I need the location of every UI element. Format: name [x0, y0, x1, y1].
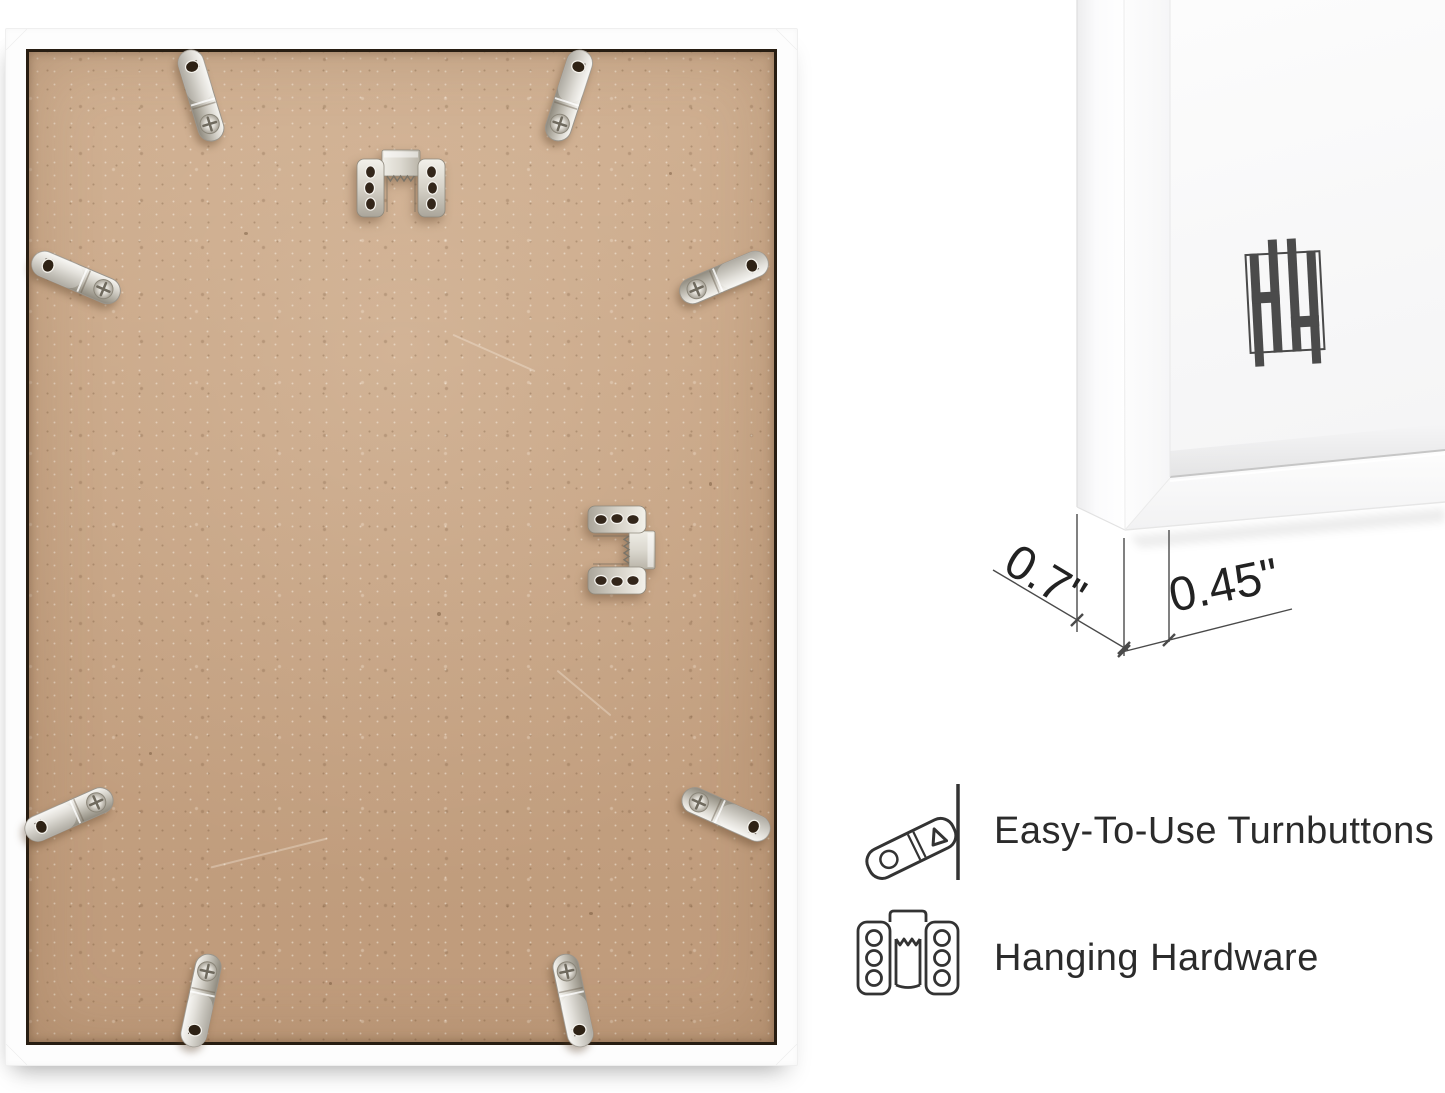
turnbutton-upper-right	[676, 263, 772, 292]
hanging-hardware-right	[575, 514, 667, 586]
frame-miter-joint	[776, 29, 797, 50]
turnbutton-bottom-left	[153, 986, 249, 1015]
frame-side-face	[1077, 0, 1125, 530]
turnbutton-lower-right	[678, 800, 774, 829]
frame-corner-photo: 0.7" 0.45"	[980, 0, 1445, 700]
product-infographic: 0.7" 0.45" Easy-To-Use Turnbuttons Hangi…	[0, 0, 1445, 1093]
turnbutton-upper-left	[28, 263, 124, 292]
frame-miter-joint	[6, 1044, 27, 1065]
frame-miter-joint	[776, 1044, 797, 1065]
hanging-hardware-icon	[852, 906, 964, 1002]
dimension-face-label: 0.45"	[1165, 549, 1284, 623]
turnbutton-top-right	[521, 81, 617, 110]
frame-miter-joint	[6, 29, 27, 50]
feature-label-hanging-hardware: Hanging Hardware	[994, 939, 1319, 977]
frame-mat-area	[1170, 0, 1445, 477]
turnbutton-lower-left	[21, 800, 117, 829]
turnbutton-top-left	[153, 81, 249, 110]
frame-front-face	[1124, 0, 1170, 530]
hanging-hardware-top	[355, 148, 447, 220]
frame-back-photo	[5, 28, 798, 1066]
turnbutton-bottom-right	[525, 986, 621, 1015]
dimension-depth-label: 0.7"	[995, 534, 1094, 623]
feature-label-turnbuttons: Easy-To-Use Turnbuttons	[994, 812, 1434, 850]
turnbutton-icon	[850, 778, 965, 886]
